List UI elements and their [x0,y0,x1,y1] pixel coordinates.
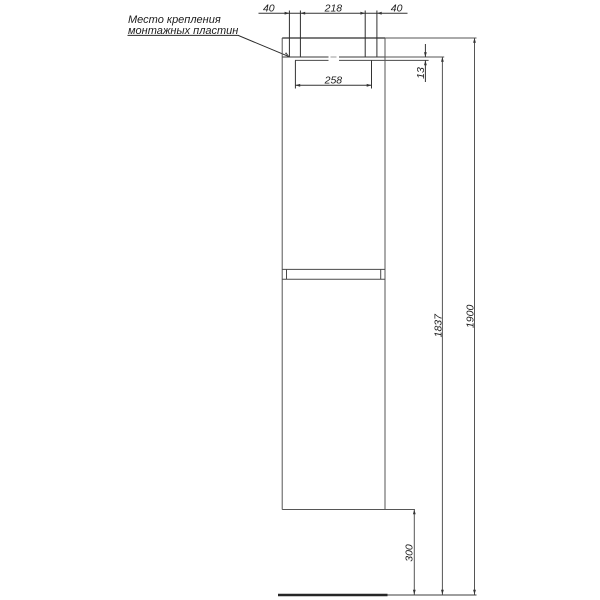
svg-text:300: 300 [404,544,416,562]
svg-text:1837: 1837 [432,313,444,338]
svg-text:258: 258 [324,74,343,86]
svg-text:40: 40 [391,3,403,15]
svg-text:1900: 1900 [465,305,477,329]
svg-text:13: 13 [415,67,427,79]
svg-text:40: 40 [263,3,275,15]
svg-text:218: 218 [324,3,343,15]
